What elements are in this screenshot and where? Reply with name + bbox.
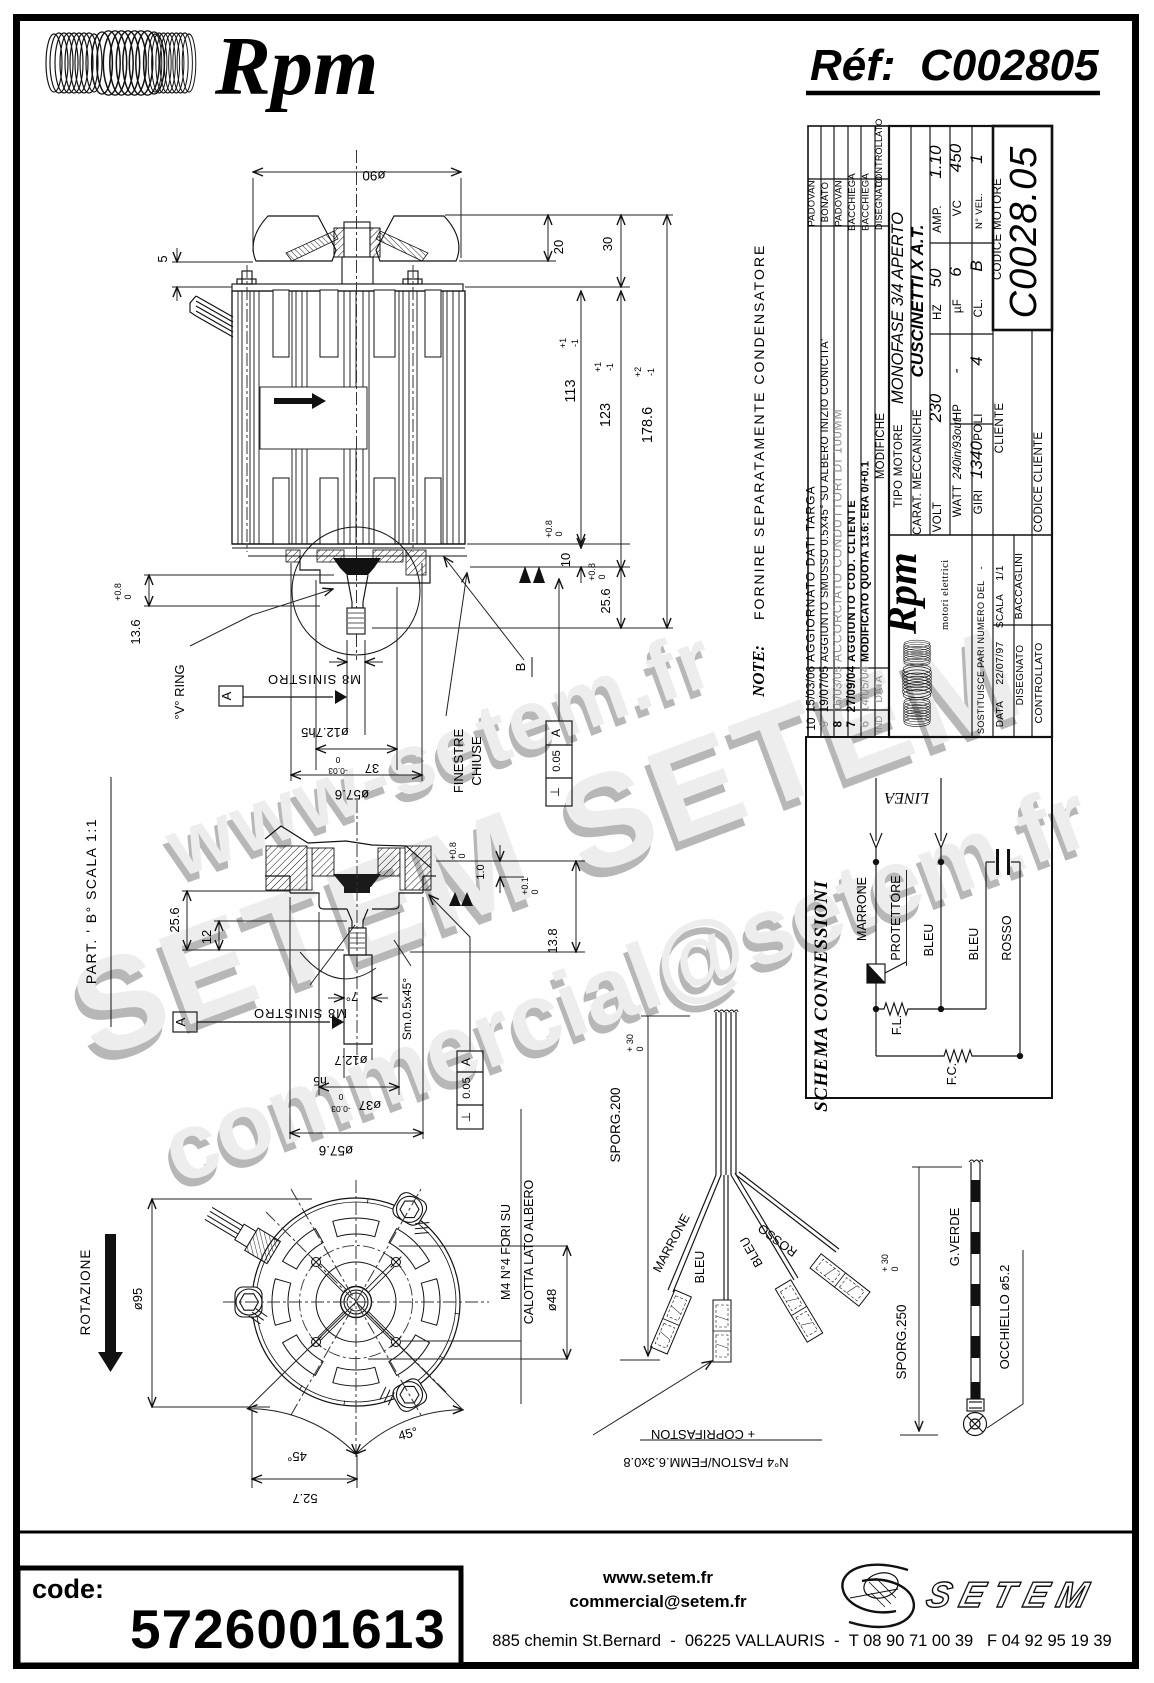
svg-text:25.6: 25.6 <box>598 588 613 613</box>
svg-text:µF: µF <box>952 299 964 313</box>
svg-text:+1: +1 <box>558 338 568 348</box>
svg-text:BLEU: BLEU <box>922 924 936 957</box>
svg-text:N°4 FASTON/FEMM.6.3x0.8: N°4 FASTON/FEMM.6.3x0.8 <box>623 1455 788 1470</box>
svg-text:7°: 7° <box>346 989 358 1004</box>
svg-text:1.0: 1.0 <box>475 864 487 879</box>
svg-text:6: 6 <box>946 267 965 277</box>
svg-text:Rpm: Rpm <box>214 20 378 113</box>
svg-text:TIPO MOTORE: TIPO MOTORE <box>893 424 905 508</box>
svg-text:ROTAZIONE: ROTAZIONE <box>78 1249 93 1336</box>
svg-text:0: 0 <box>123 594 133 599</box>
svg-text:A: A <box>173 1017 188 1026</box>
svg-text:SETEM: SETEM <box>922 1575 1101 1615</box>
svg-text:IND: IND <box>874 716 885 733</box>
svg-text:A: A <box>219 691 234 700</box>
svg-text:22/07/97: 22/07/97 <box>994 641 1006 684</box>
svg-text:A: A <box>459 1058 473 1066</box>
svg-text:0.05: 0.05 <box>551 750 563 771</box>
svg-text:AGGIUNTO COD. CLIENTE: AGGIUNTO COD. CLIENTE <box>846 499 858 662</box>
svg-text:+2: +2 <box>633 367 643 377</box>
svg-text:SCHEMA CONNESSIONI: SCHEMA CONNESSIONI <box>811 880 832 1112</box>
svg-text:G.VERDE: G.VERDE <box>947 1207 962 1266</box>
svg-text:MODIFICATO QUOTA 13.6: ERA 0/+: MODIFICATO QUOTA 13.6: ERA 0/+0.1 <box>860 461 872 662</box>
svg-text:6: 6 <box>860 721 872 728</box>
svg-text:45°: 45° <box>287 1449 307 1464</box>
svg-text:14/05/04: 14/05/04 <box>860 665 872 712</box>
svg-text:FORNIRE SEPARATAMENTE CONDENSA: FORNIRE SEPARATAMENTE CONDENSATORE <box>751 244 767 620</box>
svg-text:C0028.05: C0028.05 <box>1003 146 1045 319</box>
svg-text:BACCHIEGA: BACCHIEGA <box>861 173 872 231</box>
svg-text:BACCAGLINI: BACCAGLINI <box>1013 553 1025 620</box>
svg-text:DISEGNATO: DISEGNATO <box>1015 645 1026 706</box>
svg-text:5726001613: 5726001613 <box>130 1598 446 1660</box>
svg-text:Sm.0.5x45°: Sm.0.5x45° <box>400 978 414 1040</box>
svg-text:BACCHIEGA: BACCHIEGA <box>847 173 858 231</box>
svg-text:15/03/06: 15/03/06 <box>806 666 818 712</box>
svg-text:52.7: 52.7 <box>292 1491 317 1506</box>
svg-text:1: 1 <box>967 154 986 163</box>
svg-text:0: 0 <box>457 853 467 858</box>
svg-text:7: 7 <box>846 721 858 728</box>
svg-text:+ 30: + 30 <box>625 1034 635 1052</box>
svg-text:+0.8: +0.8 <box>544 520 554 538</box>
svg-text:ø48: ø48 <box>544 1289 559 1311</box>
svg-text:MARRONE: MARRONE <box>855 877 869 941</box>
svg-text:10: 10 <box>558 553 573 567</box>
svg-text:30: 30 <box>600 237 615 251</box>
svg-text:ø12.7: ø12.7 <box>334 1053 367 1068</box>
svg-text:-0.03: -0.03 <box>331 1104 351 1114</box>
svg-text:ø37: ø37 <box>359 1098 381 1113</box>
svg-text:Réf: C002805: Réf: C002805 <box>810 41 1099 90</box>
svg-text:HZ: HZ <box>932 304 944 320</box>
svg-text:-1: -1 <box>570 339 580 347</box>
svg-text:0: 0 <box>635 1046 645 1051</box>
svg-text:ø57.6: ø57.6 <box>335 787 370 802</box>
svg-text:1/1: 1/1 <box>994 565 1006 581</box>
svg-text:123: 123 <box>598 403 614 427</box>
svg-text:13.6: 13.6 <box>128 619 143 644</box>
svg-text:230: 230 <box>926 393 945 423</box>
svg-text:AMP.: AMP. <box>932 205 944 233</box>
svg-text:37: 37 <box>365 761 379 776</box>
svg-text:0: 0 <box>338 1092 343 1102</box>
svg-text:SPORG.200: SPORG.200 <box>608 1087 623 1162</box>
svg-text:BLEU: BLEU <box>967 928 981 961</box>
svg-text:OCCHIELLO ø5.2: OCCHIELLO ø5.2 <box>997 1265 1012 1370</box>
svg-text:+1: +1 <box>593 362 603 372</box>
svg-text:10: 10 <box>806 717 818 730</box>
svg-text:ø90: ø90 <box>362 168 385 183</box>
svg-text:CALOTTA LATO ALBERO: CALOTTA LATO ALBERO <box>522 1179 536 1324</box>
svg-text:A: A <box>549 729 563 737</box>
svg-text:BONATO: BONATO <box>820 182 831 222</box>
svg-text:DATA: DATA <box>995 701 1006 727</box>
svg-text:1.10: 1.10 <box>926 145 945 179</box>
svg-text:ACCORCIATO CONDUTTORI DI 100MM: ACCORCIATO CONDUTTORI DI 100MM <box>831 408 845 662</box>
svg-text:SPORG.250: SPORG.250 <box>894 1304 909 1379</box>
svg-text:GIRI: GIRI <box>973 490 985 515</box>
svg-text:code:: code: <box>32 1574 104 1604</box>
svg-text:NOTE:: NOTE: <box>749 645 768 698</box>
svg-text:CLIENTE: CLIENTE <box>994 403 1006 454</box>
svg-text:9: 9 <box>819 721 831 728</box>
svg-text:BLEU: BLEU <box>693 1251 707 1284</box>
svg-text:LINEA: LINEA <box>885 789 931 806</box>
svg-text:N° VEL.: N° VEL. <box>974 193 985 229</box>
svg-text:-1: -1 <box>646 368 656 376</box>
svg-text:-: - <box>948 369 965 374</box>
svg-text:CHIUSE: CHIUSE <box>469 736 484 785</box>
svg-text:h5: h5 <box>313 1074 327 1088</box>
svg-text:20: 20 <box>551 240 566 254</box>
svg-text:CUSCINETTI X A.T.: CUSCINETTI X A.T. <box>908 225 927 378</box>
svg-text:-1: -1 <box>605 363 615 371</box>
svg-text:PADOVANI: PADOVANI <box>834 177 845 226</box>
svg-text:ø12.7h5: ø12.7h5 <box>301 725 349 740</box>
svg-text:450: 450 <box>946 143 965 172</box>
svg-text:ROSSO: ROSSO <box>1000 915 1014 960</box>
svg-text:ø95: ø95 <box>130 1288 145 1310</box>
svg-text:CL.: CL. <box>973 299 985 318</box>
svg-text:MONOFASE 3/4 APERTO: MONOFASE 3/4 APERTO <box>889 212 907 404</box>
svg-text:B: B <box>513 663 528 672</box>
svg-text:⊥: ⊥ <box>548 787 562 797</box>
svg-text:VC: VC <box>952 200 964 217</box>
svg-text:0: 0 <box>554 531 564 536</box>
svg-text:885 chemin St.Bernard - 0622: 885 chemin St.Bernard - 06225 VALLAURIS … <box>492 1632 1111 1650</box>
svg-text:www.setem.fr: www.setem.fr <box>602 1568 713 1587</box>
svg-text:MODIFICHE: MODIFICHE <box>875 413 887 479</box>
svg-text:ø57.6: ø57.6 <box>319 1143 354 1158</box>
svg-text:SOSTITUISCE PARI NUMERO DEL: SOSTITUISCE PARI NUMERO DEL - <box>976 566 986 734</box>
svg-text:CONTROLLATO: CONTROLLATO <box>874 119 884 188</box>
svg-text:°V° RING: °V° RING <box>172 664 187 719</box>
svg-text:13.8: 13.8 <box>545 928 560 953</box>
svg-text:HP: HP <box>952 404 964 421</box>
svg-text:25.6: 25.6 <box>167 907 182 932</box>
svg-text:WATT: WATT <box>952 485 964 518</box>
svg-text:M4 N°4 FORI SU: M4 N°4 FORI SU <box>499 1204 513 1300</box>
svg-text:CODICE CLIENTE: CODICE CLIENTE <box>1033 432 1045 533</box>
svg-text:SCALA: SCALA <box>995 594 1006 628</box>
svg-text:PADOVANI: PADOVANI <box>807 177 818 226</box>
svg-text:178.6: 178.6 <box>640 407 656 443</box>
svg-text:F.C.: F.C. <box>945 1063 959 1085</box>
svg-text:commercial@setem.fr: commercial@setem.fr <box>569 1592 747 1611</box>
svg-text:0.05: 0.05 <box>461 1077 473 1098</box>
svg-text:0: 0 <box>335 755 340 765</box>
svg-text:CONTROLLATO: CONTROLLATO <box>1033 642 1045 723</box>
svg-text:F.L.: F.L. <box>890 1015 904 1035</box>
svg-text:8: 8 <box>833 720 845 727</box>
svg-text:⊥: ⊥ <box>459 1112 473 1122</box>
svg-text:+ 30: + 30 <box>880 1254 890 1272</box>
svg-text:Rpm: Rpm <box>880 552 926 635</box>
svg-text:+0.8: +0.8 <box>113 583 123 601</box>
svg-text:+0.8: +0.8 <box>587 563 597 581</box>
svg-text:1340: 1340 <box>967 441 986 479</box>
svg-text:16/03/05: 16/03/05 <box>833 666 845 712</box>
svg-text:0: 0 <box>530 889 540 894</box>
svg-text:0: 0 <box>890 1266 900 1271</box>
svg-text:B: B <box>967 260 986 271</box>
svg-text:113: 113 <box>563 379 579 402</box>
svg-text:27/09/04: 27/09/04 <box>846 665 858 712</box>
svg-text:5: 5 <box>155 255 170 262</box>
svg-text:PART. ' B° SCALA 1:1: PART. ' B° SCALA 1:1 <box>83 818 99 984</box>
svg-text:AGGIUNTO SMUSSO 0.5X45° SU ALB: AGGIUNTO SMUSSO 0.5X45° SU ALBERO INIZIO… <box>819 338 831 662</box>
svg-text:FINESTRE: FINESTRE <box>451 729 466 794</box>
svg-text:0: 0 <box>597 574 607 579</box>
svg-text:DATA: DATA <box>873 675 885 702</box>
svg-text:19/07/05: 19/07/05 <box>819 666 831 712</box>
svg-text:+0.1: +0.1 <box>520 877 530 895</box>
svg-text:POLI: POLI <box>973 413 985 440</box>
svg-text:AGGIORNATO DATI TARGA: AGGIORNATO DATI TARGA <box>804 485 818 662</box>
svg-text:50: 50 <box>926 268 945 287</box>
svg-text:PROTETTORE: PROTETTORE <box>889 875 903 960</box>
svg-text:12: 12 <box>199 930 214 944</box>
svg-text:CARAT. MECCANICHE: CARAT. MECCANICHE <box>912 409 924 535</box>
svg-text:4: 4 <box>967 356 986 365</box>
svg-text:VOLT: VOLT <box>932 502 944 532</box>
svg-text:motori elettrici: motori elettrici <box>940 559 951 630</box>
svg-text:240in/93out: 240in/93out <box>952 418 964 480</box>
